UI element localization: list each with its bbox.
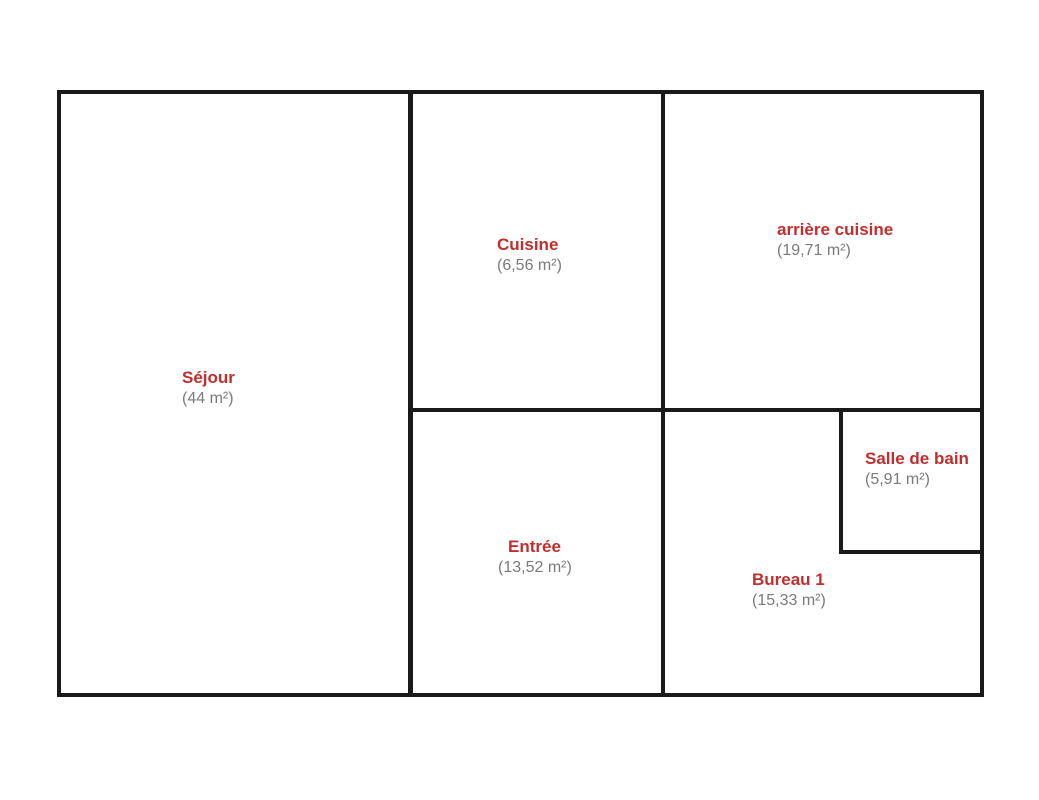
room-bureau: Bureau 1 (15,33 m²) bbox=[752, 569, 826, 611]
room-arriere-cuisine: arrière cuisine (19,71 m²) bbox=[777, 219, 893, 261]
room-name-cuisine: Cuisine bbox=[497, 234, 562, 255]
wall-center-divider bbox=[661, 90, 665, 697]
wall-bathroom-bottom bbox=[839, 550, 984, 554]
room-name-entree: Entrée bbox=[508, 536, 572, 557]
room-area-arriere-cuisine: (19,71 m²) bbox=[777, 240, 893, 261]
room-name-arriere-cuisine: arrière cuisine bbox=[777, 219, 893, 240]
room-area-bureau: (15,33 m²) bbox=[752, 590, 826, 611]
room-cuisine: Cuisine (6,56 m²) bbox=[497, 234, 562, 276]
room-area-salle-de-bain: (5,91 m²) bbox=[865, 469, 969, 490]
wall-bathroom-left bbox=[839, 408, 843, 554]
room-name-salle-de-bain: Salle de bain bbox=[865, 448, 969, 469]
room-name-bureau: Bureau 1 bbox=[752, 569, 826, 590]
floorplan-canvas: Séjour (44 m²) Cuisine (6,56 m²) arrière… bbox=[0, 0, 1039, 800]
room-area-entree: (13,52 m²) bbox=[498, 557, 572, 578]
wall-sejour-divider bbox=[408, 90, 413, 697]
room-sejour: Séjour (44 m²) bbox=[182, 367, 235, 409]
room-name-sejour: Séjour bbox=[182, 367, 235, 388]
room-area-cuisine: (6,56 m²) bbox=[497, 255, 562, 276]
room-salle-de-bain: Salle de bain (5,91 m²) bbox=[865, 448, 969, 490]
room-entree: Entrée (13,52 m²) bbox=[498, 536, 572, 578]
room-area-sejour: (44 m²) bbox=[182, 388, 235, 409]
wall-horizontal-mid bbox=[408, 408, 984, 412]
